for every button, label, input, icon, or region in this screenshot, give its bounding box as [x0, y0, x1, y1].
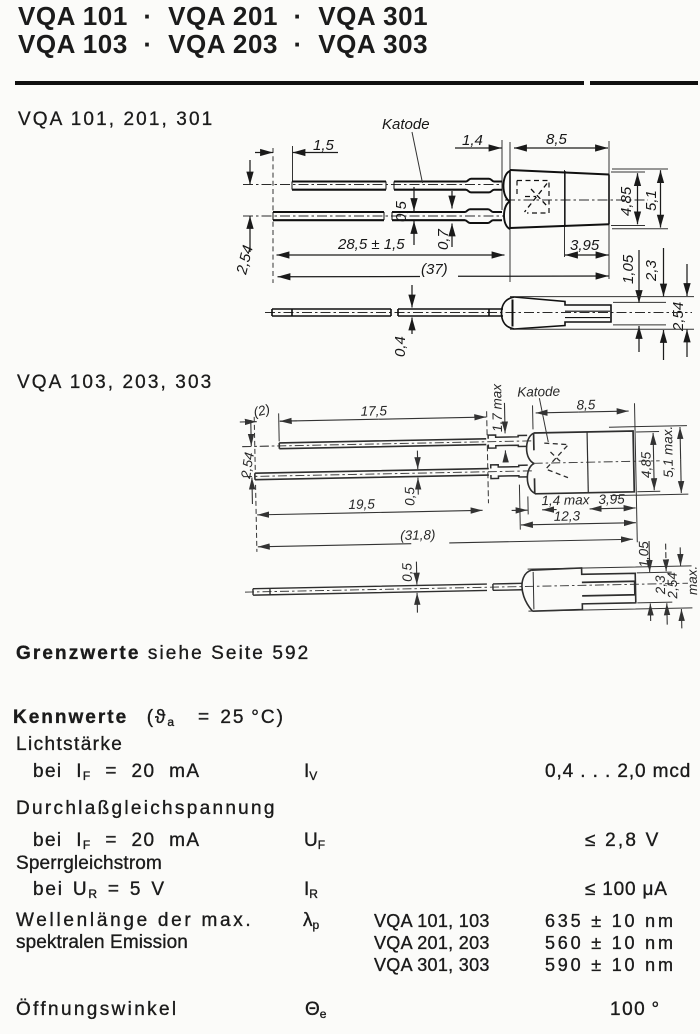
- svg-text:8,5: 8,5: [576, 397, 596, 412]
- svg-text:28,5 ± 1,5: 28,5 ± 1,5: [337, 236, 405, 253]
- svg-text:1,5: 1,5: [313, 137, 335, 154]
- svg-text:4,85: 4,85: [618, 186, 635, 216]
- svg-text:1,4 max: 1,4 max: [541, 492, 591, 508]
- svg-text:Katode: Katode: [382, 116, 430, 133]
- svg-text:17,5: 17,5: [360, 403, 387, 419]
- svg-text:5,1 max.: 5,1 max.: [660, 426, 676, 478]
- svg-text:19,5: 19,5: [348, 497, 375, 513]
- svg-text:2,54: 2,54: [665, 572, 681, 600]
- svg-text:0,5: 0,5: [393, 200, 410, 222]
- svg-text:2,54: 2,54: [233, 244, 257, 277]
- svg-text:0,7: 0,7: [435, 228, 452, 250]
- svg-text:1,7 max: 1,7 max: [489, 383, 505, 433]
- svg-text:1,4: 1,4: [462, 132, 483, 149]
- svg-text:8,5: 8,5: [546, 131, 568, 148]
- svg-text:3,95: 3,95: [598, 491, 625, 507]
- svg-text:4,85: 4,85: [638, 451, 654, 478]
- svg-text:0,5: 0,5: [399, 562, 414, 582]
- svg-text:5,1: 5,1: [643, 190, 660, 211]
- svg-text:3,95: 3,95: [570, 237, 600, 254]
- svg-text:0,5: 0,5: [402, 486, 417, 506]
- svg-text:1,05: 1,05: [636, 541, 652, 568]
- svg-text:Katode: Katode: [517, 384, 560, 400]
- svg-text:12,3: 12,3: [554, 508, 581, 524]
- svg-text:0,4: 0,4: [392, 336, 409, 357]
- svg-text:(31,8): (31,8): [400, 527, 436, 543]
- svg-text:(37): (37): [421, 261, 448, 278]
- svg-text:(2): (2): [252, 401, 271, 419]
- svg-text:2,54: 2,54: [670, 302, 687, 332]
- svg-text:max.: max.: [685, 566, 700, 596]
- svg-text:1,05: 1,05: [620, 254, 637, 284]
- svg-text:2,3: 2,3: [643, 259, 660, 282]
